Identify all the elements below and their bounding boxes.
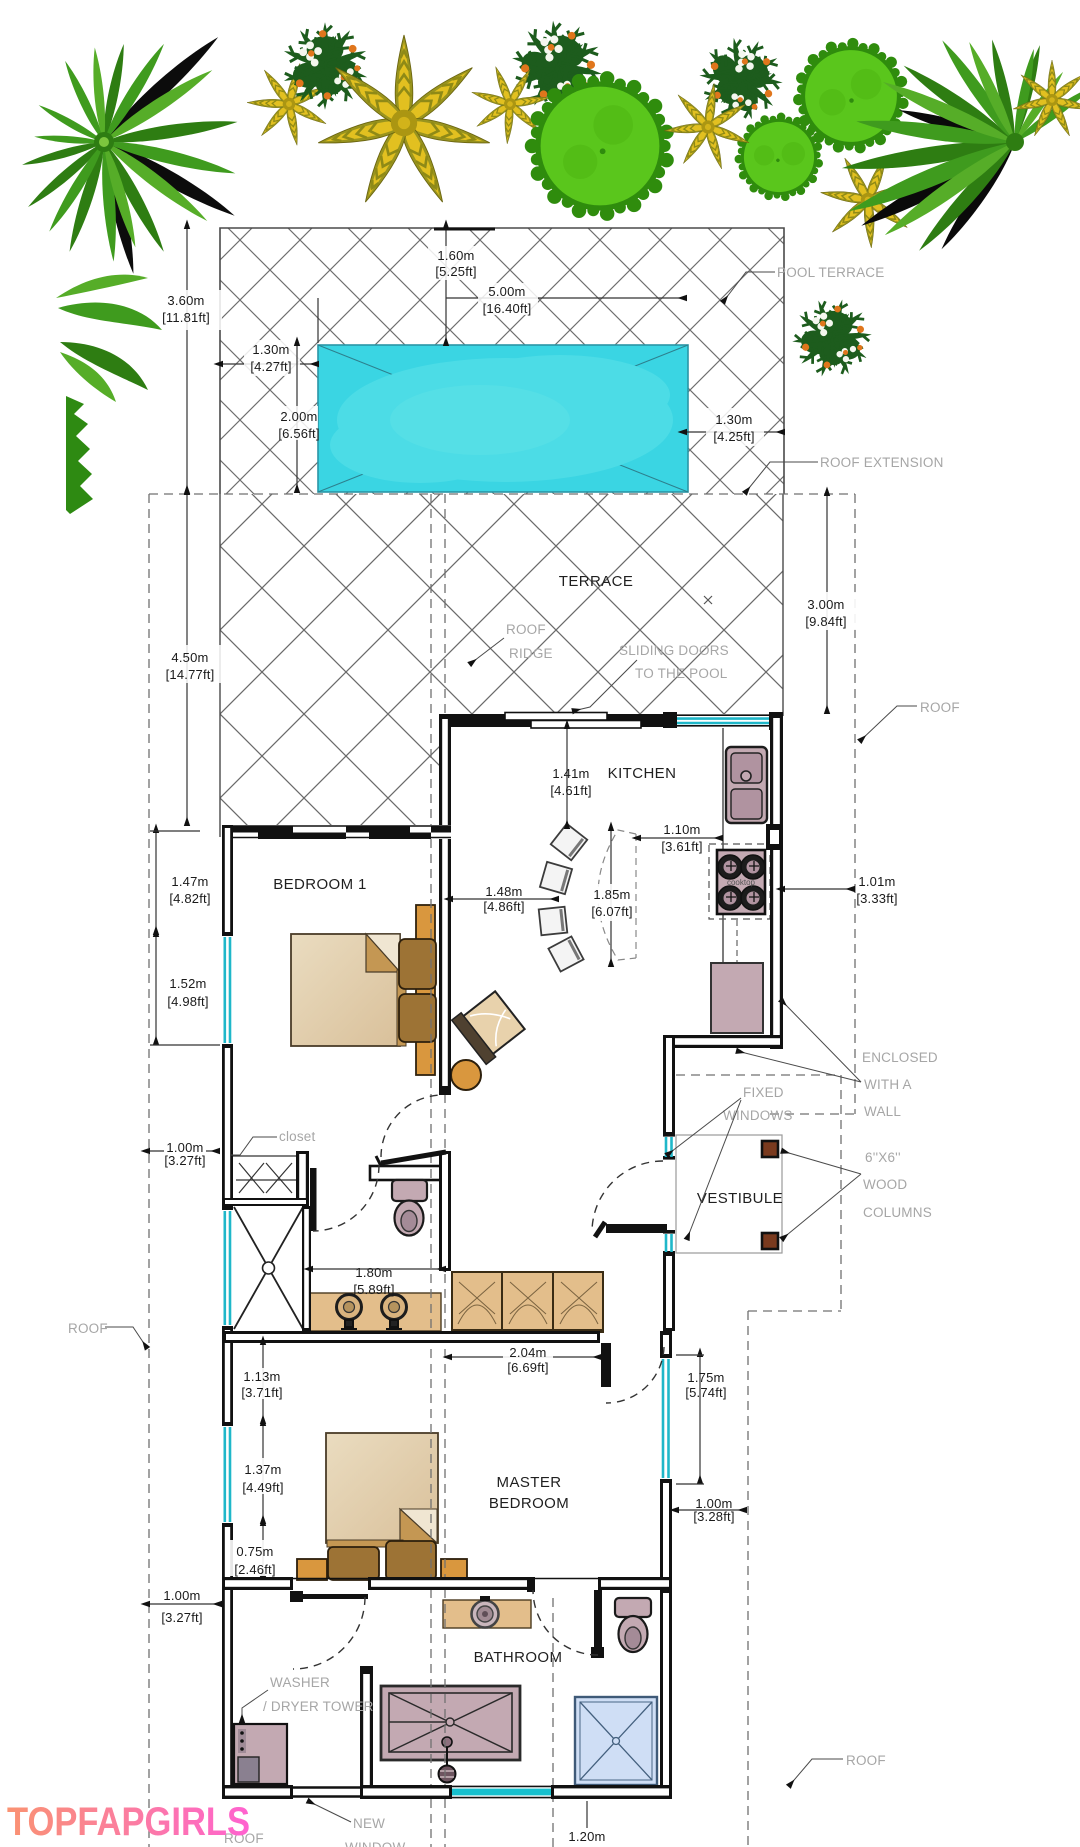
svg-text:2.00m: 2.00m	[280, 409, 317, 424]
svg-text:6''X6'': 6''X6''	[865, 1150, 901, 1165]
svg-text:[11.81ft]: [11.81ft]	[162, 310, 210, 325]
svg-text:[9.84ft]: [9.84ft]	[805, 614, 846, 629]
svg-text:[16.40ft]: [16.40ft]	[483, 301, 532, 316]
svg-text:[3.27ft]: [3.27ft]	[164, 1153, 205, 1168]
svg-text:1.37m: 1.37m	[244, 1462, 281, 1477]
svg-text:ROOF: ROOF	[846, 1753, 886, 1768]
svg-text:ROOF EXTENSION: ROOF EXTENSION	[820, 455, 944, 470]
svg-text:NEW: NEW	[353, 1816, 385, 1831]
svg-text:VESTIBULE: VESTIBULE	[697, 1190, 783, 1207]
svg-text:TO THE POOL: TO THE POOL	[635, 666, 728, 681]
svg-text:1.48m: 1.48m	[485, 884, 522, 899]
svg-text:[4.98ft]: [4.98ft]	[167, 994, 208, 1009]
svg-text:WITH A: WITH A	[864, 1077, 912, 1092]
svg-text:3.00m: 3.00m	[807, 597, 844, 612]
svg-text:MASTER: MASTER	[497, 1474, 562, 1491]
svg-text:[3.28ft]: [3.28ft]	[693, 1509, 734, 1524]
svg-text:ROOF: ROOF	[68, 1321, 108, 1336]
svg-text:[6.07ft]: [6.07ft]	[591, 904, 632, 919]
svg-text:[14.77ft]: [14.77ft]	[166, 667, 215, 682]
svg-text:ENCLOSED: ENCLOSED	[862, 1050, 938, 1065]
svg-text:COLUMNS: COLUMNS	[863, 1205, 932, 1220]
svg-text:FIXED: FIXED	[743, 1085, 784, 1100]
svg-text:1.00m: 1.00m	[163, 1588, 200, 1603]
svg-text:[3.71ft]: [3.71ft]	[241, 1385, 282, 1400]
svg-text:/ DRYER TOWER: / DRYER TOWER	[263, 1699, 374, 1714]
svg-text:[4.49ft]: [4.49ft]	[242, 1480, 283, 1495]
svg-text:1.85m: 1.85m	[593, 887, 630, 902]
svg-text:1.30m: 1.30m	[715, 412, 752, 427]
svg-text:1.13m: 1.13m	[243, 1369, 280, 1384]
svg-text:1.20m: 1.20m	[568, 1829, 605, 1844]
svg-text:1.52m: 1.52m	[169, 976, 206, 991]
svg-text:1.30m: 1.30m	[252, 342, 289, 357]
svg-text:[4.82ft]: [4.82ft]	[169, 891, 210, 906]
svg-text:[5.25ft]: [5.25ft]	[435, 264, 476, 279]
svg-text:TOPFAPGIRLS: TOPFAPGIRLS	[7, 1800, 250, 1844]
svg-text:5.00m: 5.00m	[488, 284, 525, 299]
svg-text:[4.61ft]: [4.61ft]	[550, 783, 591, 798]
svg-text:1.47m: 1.47m	[171, 874, 208, 889]
svg-text:1.75m: 1.75m	[687, 1370, 724, 1385]
svg-text:[5.74ft]: [5.74ft]	[685, 1385, 726, 1400]
svg-text:4.50m: 4.50m	[171, 650, 208, 665]
svg-text:WASHER: WASHER	[270, 1675, 330, 1690]
svg-text:TERRACE: TERRACE	[559, 573, 633, 590]
svg-text:cooktop: cooktop	[727, 878, 756, 887]
svg-text:[4.86ft]: [4.86ft]	[483, 899, 524, 914]
svg-text:[2.46ft]: [2.46ft]	[234, 1562, 275, 1577]
svg-text:SLIDING DOORS: SLIDING DOORS	[619, 643, 729, 658]
svg-text:1.01m: 1.01m	[858, 874, 895, 889]
svg-text:WOOD: WOOD	[863, 1177, 907, 1192]
svg-text:1.80m: 1.80m	[355, 1265, 392, 1280]
svg-text:[5.89ft]: [5.89ft]	[353, 1282, 394, 1297]
svg-text:WALL: WALL	[864, 1104, 901, 1119]
svg-text:BEDROOM 1: BEDROOM 1	[273, 876, 367, 893]
svg-text:RIDGE: RIDGE	[509, 646, 553, 661]
svg-text:2.04m: 2.04m	[509, 1345, 546, 1360]
svg-text:1.10m: 1.10m	[663, 822, 700, 837]
svg-text:ROOF: ROOF	[920, 700, 960, 715]
svg-text:[3.61ft]: [3.61ft]	[661, 839, 702, 854]
svg-text:[6.56ft]: [6.56ft]	[278, 426, 319, 441]
svg-text:WINDOW: WINDOW	[345, 1840, 405, 1847]
svg-text:BEDROOM: BEDROOM	[489, 1495, 569, 1512]
svg-text:KITCHEN: KITCHEN	[608, 765, 677, 782]
svg-text:[6.69ft]: [6.69ft]	[507, 1360, 548, 1375]
svg-text:[3.27ft]: [3.27ft]	[161, 1610, 202, 1625]
svg-text:0.75m: 0.75m	[236, 1544, 273, 1559]
svg-text:[3.33ft]: [3.33ft]	[856, 891, 897, 906]
svg-text:[4.27ft]: [4.27ft]	[250, 359, 291, 374]
svg-text:POOL TERRACE: POOL TERRACE	[777, 265, 884, 280]
svg-text:1.60m: 1.60m	[437, 248, 474, 263]
svg-text:3.60m: 3.60m	[167, 293, 204, 308]
svg-text:1.41m: 1.41m	[552, 766, 589, 781]
svg-text:closet: closet	[279, 1129, 316, 1144]
svg-text:ROOF: ROOF	[506, 622, 546, 637]
svg-text:BATHROOM: BATHROOM	[474, 1649, 563, 1666]
svg-text:[4.25ft]: [4.25ft]	[713, 429, 754, 444]
